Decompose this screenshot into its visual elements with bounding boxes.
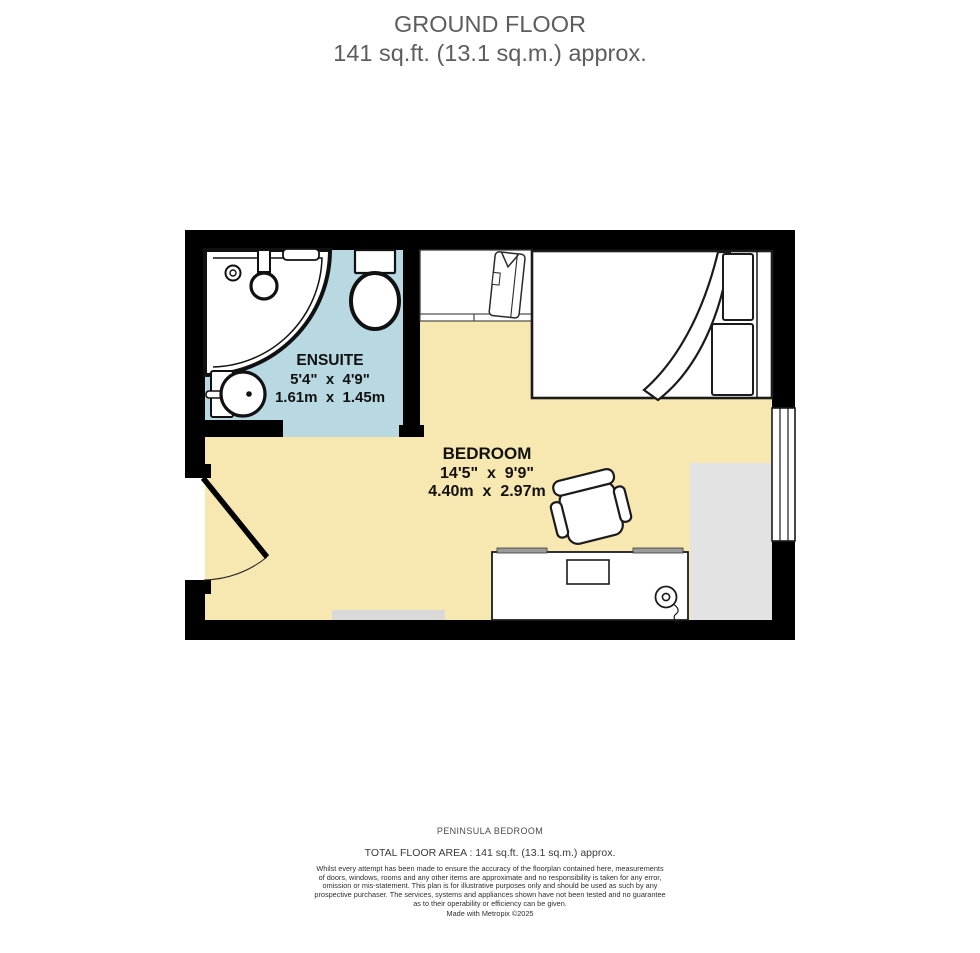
- corner-rug: [690, 463, 772, 620]
- shirt-icon: [489, 252, 526, 319]
- bedroom-label: BEDROOM: [443, 444, 532, 463]
- wall-ensuite-vertical: [403, 248, 420, 437]
- wall-ensuite-vertical-cap: [399, 425, 424, 437]
- bedroom-dims-m: 4.40m x 2.97m: [428, 483, 545, 500]
- wall-left-upper: [185, 230, 205, 478]
- disclaimer-line: as to their operability or efficiency ca…: [0, 900, 980, 909]
- wall-ensuite-bottom: [203, 420, 283, 437]
- floor-mat: [332, 610, 445, 620]
- toilet: [351, 250, 399, 329]
- ensuite-dims-ft: 5'4" x 4'9": [290, 371, 370, 388]
- wall-right-lower: [772, 541, 795, 640]
- desk: [492, 548, 688, 623]
- plan-footer: PENINSULA BEDROOM TOTAL FLOOR AREA : 141…: [0, 826, 980, 918]
- shower-head: [251, 273, 277, 299]
- window: [772, 408, 795, 541]
- ensuite-dims-m: 1.61m x 1.45m: [275, 389, 385, 406]
- total-floor-area: TOTAL FLOOR AREA : 141 sq.ft. (13.1 sq.m…: [0, 847, 980, 859]
- laptop: [567, 560, 609, 584]
- ensuite-label: ENSUITE: [296, 352, 363, 369]
- wardrobe: [420, 250, 532, 321]
- wall-bottom: [185, 620, 795, 640]
- bedroom-dims-ft: 14'5" x 9'9": [440, 465, 534, 482]
- pillow-top: [723, 254, 753, 320]
- pillow-bottom: [712, 324, 753, 395]
- wall-right-upper: [772, 230, 795, 408]
- shower-shelf: [283, 249, 319, 260]
- bed: [532, 251, 772, 400]
- toilet-cistern: [355, 250, 395, 273]
- credit: Made with Metropix ©2025: [0, 910, 980, 919]
- property-name: PENINSULA BEDROOM: [0, 826, 980, 836]
- wall-top: [185, 230, 795, 250]
- sink-basin: [221, 372, 265, 416]
- toilet-bowl: [351, 273, 399, 329]
- sink: [206, 371, 265, 417]
- shower-rail: [258, 250, 270, 272]
- door-opening: [185, 478, 205, 580]
- door-jamb-top: [185, 464, 211, 478]
- door-jamb-bottom: [185, 580, 211, 594]
- floorplan-page: GROUND FLOOR 141 sq.ft. (13.1 sq.m.) app…: [0, 0, 980, 953]
- floorplan-drawing: ENSUITE 5'4" x 4'9" 1.61m x 1.45m BEDROO…: [0, 0, 980, 953]
